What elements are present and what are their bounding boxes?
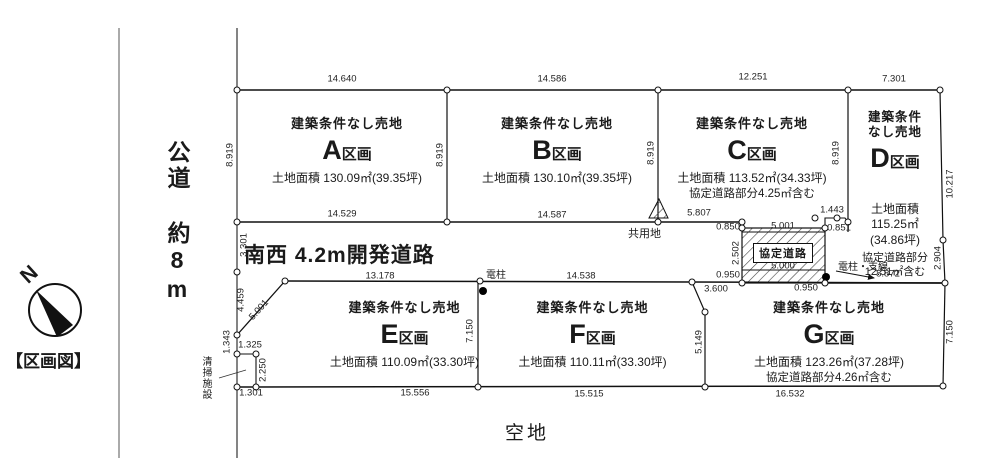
pole-label: 電柱 xyxy=(486,266,506,281)
dim-hatch-br: 0.950 xyxy=(794,283,818,294)
dim-notch-bottom: 1.301 xyxy=(239,388,263,399)
dim-a-bottom: 14.529 xyxy=(327,209,356,220)
pole-dot-icon xyxy=(479,287,487,295)
dim-c-step: 1.443 xyxy=(820,205,844,216)
dim-c-right: 8.919 xyxy=(831,141,842,165)
plot-d-title: D区画 xyxy=(851,142,939,176)
dim-notch-top: 1.325 xyxy=(238,340,262,351)
plot-a-sale-label: 建築条件なし売地 xyxy=(252,116,442,132)
plot-map-lines xyxy=(0,0,988,467)
plot-g-title: G区画 xyxy=(710,318,948,352)
common-area-icon xyxy=(649,199,668,218)
plot-c-sale-label: 建築条件なし売地 xyxy=(661,116,843,132)
dim-hatch-left: 2.502 xyxy=(731,241,742,265)
dim-top-b: 14.586 xyxy=(537,74,566,85)
cleaning-facility-label: 清掃施設 xyxy=(198,356,213,400)
dim-f-top: 14.538 xyxy=(566,271,595,282)
dim-c-bottom: 5.807 xyxy=(687,208,711,219)
plot-d-sale-label: 建築条件なし売地 xyxy=(851,110,939,140)
plot-g-sale-label: 建築条件なし売地 xyxy=(710,300,948,316)
plot-map-canvas: N 【区画図】 公道 約8m 南西 4.2m開発道路 協定道路 共用地 空地 電… xyxy=(0,0,988,467)
dim-hatch-top: 5.001 xyxy=(771,221,795,232)
dim-d-right-upper: 10.217 xyxy=(945,169,956,198)
plot-f-sale-label: 建築条件なし売地 xyxy=(490,300,695,316)
map-title: 【区画図】 xyxy=(6,347,91,372)
plot-f-title: F区画 xyxy=(490,318,695,352)
dim-road-left-upper: 3.301 xyxy=(239,233,250,257)
compass-icon xyxy=(29,284,81,337)
dim-d-bottom: 8.872 xyxy=(876,269,900,280)
dim-ab: 8.919 xyxy=(435,143,446,167)
plot-c-title: C区画 xyxy=(661,134,843,168)
plot-a: 建築条件なし売地 A区画 土地面積 130.09㎡(39.35坪) xyxy=(252,116,442,186)
plot-a-area: 土地面積 130.09㎡(39.35坪) xyxy=(252,171,442,186)
public-road-label: 公道 約8m xyxy=(160,140,194,305)
dim-top-a: 14.640 xyxy=(327,74,356,85)
dim-notch-right: 2.250 xyxy=(258,358,269,382)
dim-hatch-bl: 0.950 xyxy=(716,270,740,281)
dim-b-bottom: 14.587 xyxy=(537,210,566,221)
plot-b-sale-label: 建築条件なし売地 xyxy=(462,116,652,132)
dim-e-bottom: 15.556 xyxy=(400,388,429,399)
dev-road-label: 南西 4.2m開発道路 xyxy=(244,239,435,269)
common-area-label: 共用地 xyxy=(628,225,661,241)
plot-a-title: A区画 xyxy=(252,134,442,168)
dim-e-top: 13.178 xyxy=(365,271,394,282)
dim-road-left-lower: 4.459 xyxy=(236,288,247,312)
dim-top-c: 12.251 xyxy=(738,72,767,83)
dim-f-bottom: 15.515 xyxy=(574,389,603,400)
dim-e-left: 1.343 xyxy=(222,330,233,354)
dim-top-d: 7.301 xyxy=(882,74,906,85)
plot-d: 建築条件なし売地 D区画 土地面積115.25㎡(34.86坪) 協定道路部分1… xyxy=(851,110,939,279)
dim-hatch-bot: 5.000 xyxy=(771,261,795,272)
plot-f-area: 土地面積 110.11㎡(33.30坪) xyxy=(490,355,695,370)
dim-hatch-tl: 0.850 xyxy=(716,222,740,233)
dim-fg: 5.149 xyxy=(694,330,705,354)
dim-d-right-lower: 2.904 xyxy=(933,246,944,270)
plot-c: 建築条件なし売地 C区画 土地面積 113.52㎡(34.33坪) 協定道路部分… xyxy=(661,116,843,201)
plot-c-note: 協定道路部分4.25㎡含む xyxy=(661,187,843,201)
plot-b-area: 土地面積 130.10㎡(39.35坪) xyxy=(462,171,652,186)
plot-f: 建築条件なし売地 F区画 土地面積 110.11㎡(33.30坪) xyxy=(490,300,695,370)
dim-g-right: 7.150 xyxy=(945,320,956,344)
vacant-land-label: 空地 xyxy=(505,418,549,445)
dim-ef: 7.150 xyxy=(465,319,476,343)
dim-hatch-tr: 0.851 xyxy=(827,223,851,234)
plot-d-area: 土地面積115.25㎡(34.86坪) xyxy=(851,202,939,249)
plot-b-title: B区画 xyxy=(462,134,652,168)
dim-a-left: 8.919 xyxy=(225,143,236,167)
plot-c-area: 土地面積 113.52㎡(34.33坪) xyxy=(661,171,843,186)
dim-bc: 8.919 xyxy=(646,141,657,165)
plot-g-note: 協定道路部分4.26㎡含む xyxy=(710,371,948,385)
dim-g-top: 3.600 xyxy=(704,284,728,295)
plot-g-area: 土地面積 123.26㎡(37.28坪) xyxy=(710,355,948,370)
plot-g: 建築条件なし売地 G区画 土地面積 123.26㎡(37.28坪) 協定道路部分… xyxy=(710,300,948,385)
dim-g-bottom: 16.532 xyxy=(775,389,804,400)
plot-b: 建築条件なし売地 B区画 土地面積 130.10㎡(39.35坪) xyxy=(462,116,652,186)
